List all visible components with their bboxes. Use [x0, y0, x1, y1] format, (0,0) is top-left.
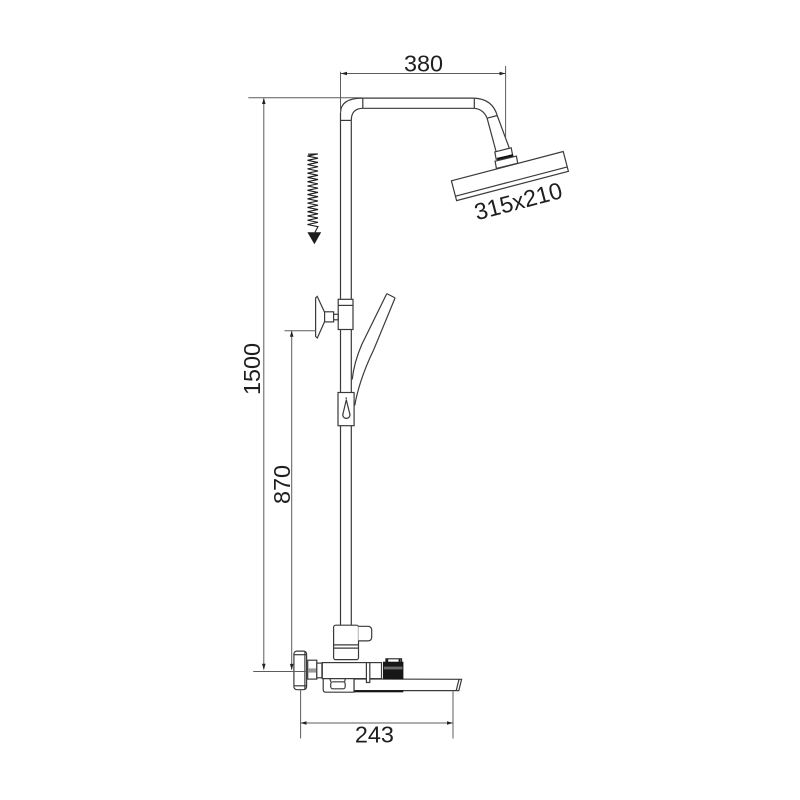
svg-text:380: 380 [404, 51, 443, 77]
svg-text:1500: 1500 [239, 343, 265, 395]
svg-text:870: 870 [269, 465, 295, 504]
svg-text:243: 243 [355, 721, 394, 747]
